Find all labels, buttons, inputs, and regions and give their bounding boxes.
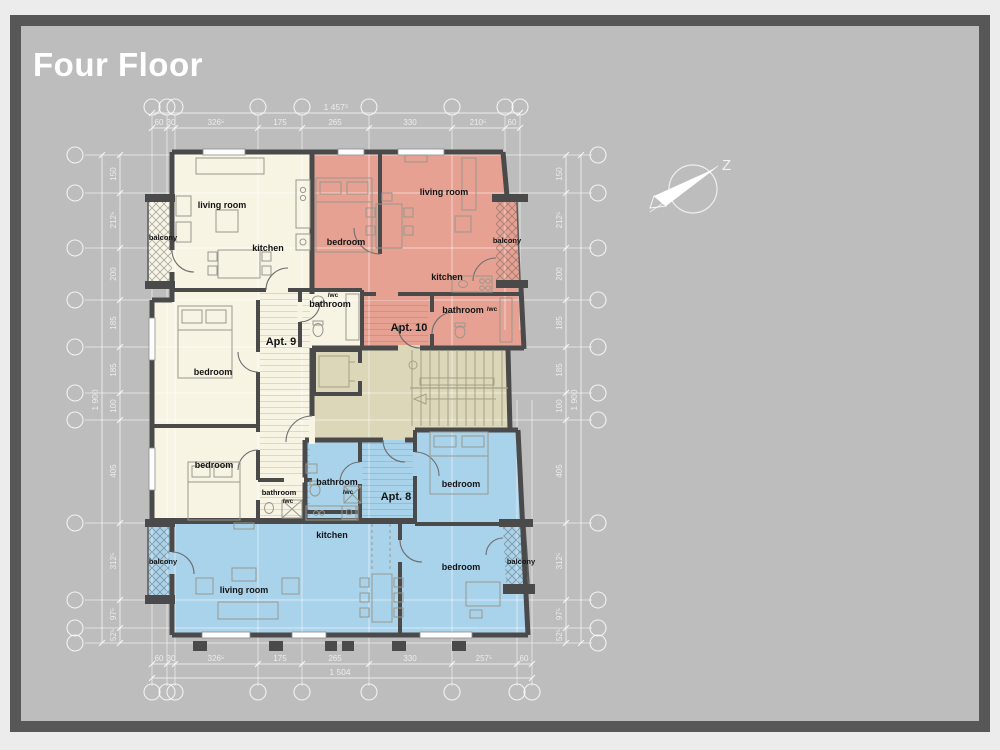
dim-label: 265 xyxy=(328,118,342,127)
apt8-bathroom-label: bathroom xyxy=(316,477,358,487)
apt8-living-room-label: living room xyxy=(220,585,269,595)
dim-label: 60 xyxy=(508,118,517,127)
apt9-bathroom-label: bathroom xyxy=(309,299,351,309)
dim-total-right: 1 900 xyxy=(569,389,579,411)
apt9-bathroom2-wc-label: /wc xyxy=(283,498,294,505)
compass-north-label: Z xyxy=(722,157,731,174)
apt9-label: Apt. 9 xyxy=(266,336,297,348)
apt10-bedroom-label: bedroom xyxy=(327,237,366,247)
dim-label: 212⁵ xyxy=(555,212,564,229)
apt10-living-room-label: living room xyxy=(420,187,469,197)
apt10-wc-label: /wc xyxy=(487,306,498,313)
floor-plan-canvas: 60 30 326⁵ 175 265 330 210⁵ 60 1 457⁵ 60… xyxy=(0,0,1000,750)
dim-label: 60 xyxy=(520,654,529,663)
grid-bubbles-left xyxy=(67,147,83,651)
dim-label: 405 xyxy=(109,464,118,478)
grid-bubbles-right xyxy=(590,147,606,651)
apt9-bedroom2-label: bedroom xyxy=(195,460,234,470)
apt9-living-room-label: living room xyxy=(198,200,247,210)
apt10-balcony-label: balcony xyxy=(493,236,522,245)
apt8-balcony-right-label: balcony xyxy=(507,557,536,566)
dim-label: 60 xyxy=(155,118,164,127)
dim-label: 210⁵ xyxy=(470,118,487,127)
dim-total-bottom: 1 504 xyxy=(329,667,351,677)
dim-label: 150 xyxy=(555,167,564,181)
apt8-label: Apt. 8 xyxy=(381,491,412,503)
dim-label: 97⁵ xyxy=(555,608,564,620)
dim-label: 175 xyxy=(273,118,287,127)
dim-label: 257⁵ xyxy=(476,654,493,663)
dimension-column-left: 150 212⁵ 200 185 185 100 405 312⁵ 97⁵ 52… xyxy=(90,152,123,646)
apt9-bathroom2-label: bathroom xyxy=(262,488,297,497)
apt9-kitchen-label: kitchen xyxy=(252,243,284,253)
dim-label: 312⁵ xyxy=(109,553,118,570)
dimension-column-right: 150 212⁵ 200 185 185 100 405 312⁵ 97⁵ 52… xyxy=(555,152,584,646)
apt10-bathroom-label: bathroom xyxy=(442,305,484,315)
apt10-label: Apt. 10 xyxy=(391,322,428,334)
dim-label: 405 xyxy=(555,464,564,478)
north-compass: Z xyxy=(650,157,731,213)
dim-label: 175 xyxy=(273,654,287,663)
grid-bubbles-bottom xyxy=(144,684,540,700)
apt9-balcony-label: balcony xyxy=(149,233,178,242)
dim-label: 185 xyxy=(109,363,118,377)
dim-total-left: 1 900 xyxy=(90,389,100,411)
dim-label: 52⁵ xyxy=(109,629,118,641)
dim-label: 212⁵ xyxy=(109,212,118,229)
dimension-row-top: 60 30 326⁵ 175 265 330 210⁵ 60 1 457⁵ xyxy=(149,102,523,131)
apt8-bedroom2-label: bedroom xyxy=(442,562,481,572)
apt8-bedroom1-label: bedroom xyxy=(442,479,481,489)
dim-label: 185 xyxy=(555,363,564,377)
dim-label: 326⁵ xyxy=(208,118,225,127)
dimension-row-bottom: 60 30 326⁵ 175 265 330 257⁵ 60 1 504 xyxy=(149,654,535,681)
dim-label: 30 xyxy=(167,118,176,127)
dim-label: 97⁵ xyxy=(109,608,118,620)
dim-label: 200 xyxy=(555,267,564,281)
dim-label: 100 xyxy=(109,399,118,413)
dim-label: 150 xyxy=(109,167,118,181)
apt9-bedroom1-label: bedroom xyxy=(194,367,233,377)
apt8-wc-label: /wc xyxy=(343,489,354,496)
dim-label: 265 xyxy=(328,654,342,663)
dim-label: 30 xyxy=(167,654,176,663)
apt8-kitchen-label: kitchen xyxy=(316,530,348,540)
dim-label: 326⁵ xyxy=(208,654,225,663)
dim-label: 60 xyxy=(155,654,164,663)
dim-label: 200 xyxy=(109,267,118,281)
dim-label: 185 xyxy=(109,316,118,330)
dim-label: 330 xyxy=(403,654,417,663)
dim-label: 100 xyxy=(555,399,564,413)
apt10-kitchen-label: kitchen xyxy=(431,272,463,282)
dim-label: 330 xyxy=(403,118,417,127)
dim-label: 52⁵ xyxy=(555,629,564,641)
apt8-balcony-left-label: balcony xyxy=(149,557,178,566)
dim-total-top: 1 457⁵ xyxy=(324,102,349,112)
dim-label: 312⁵ xyxy=(555,553,564,570)
dim-label: 185 xyxy=(555,316,564,330)
apt9-wc-label: /wc xyxy=(328,292,339,299)
